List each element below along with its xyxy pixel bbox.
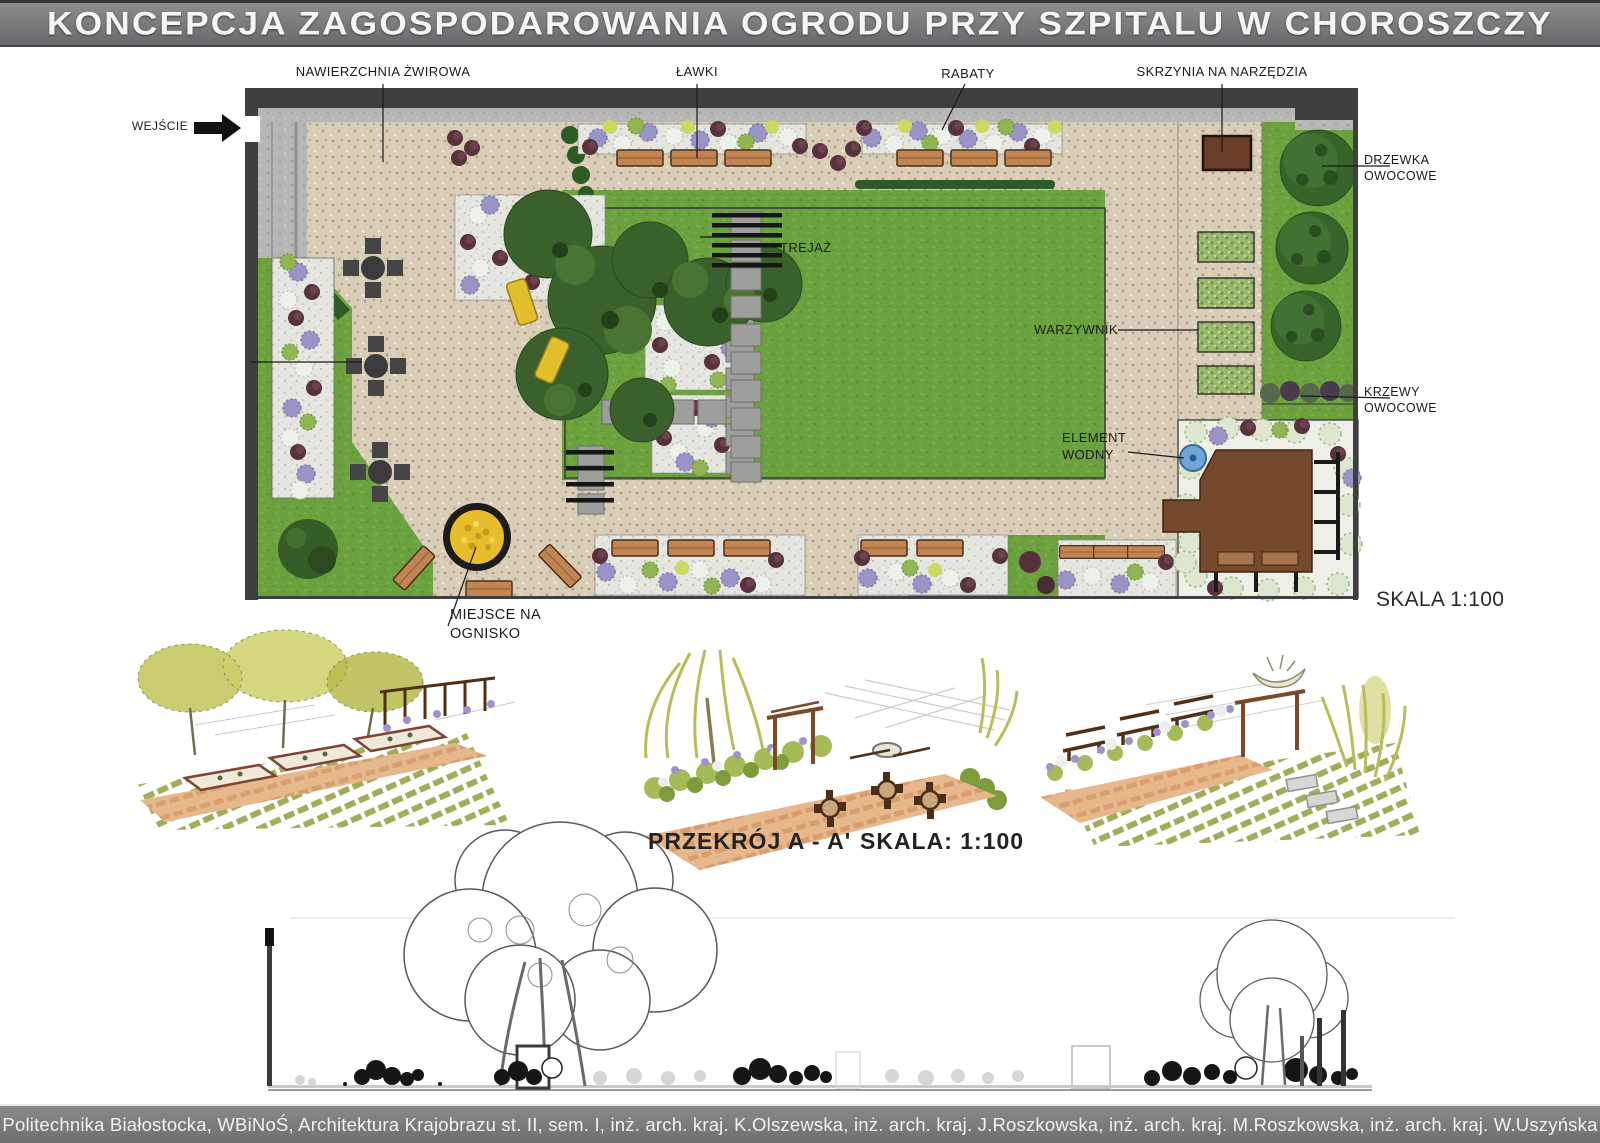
- master-plan: [194, 84, 1390, 626]
- label-fire-pit: MIEJSCE NA OGNISKO: [450, 606, 562, 644]
- tool-chest: [1203, 136, 1251, 170]
- label-vegetable-garden: WARZYWNIK: [1034, 322, 1124, 339]
- flower-bed-left: [272, 254, 334, 499]
- deck-garden: [1163, 417, 1362, 601]
- label-tool-chest: SKRZYNIA NA NARZĘDZIA: [1122, 64, 1322, 81]
- shrub-dot: [1037, 576, 1055, 594]
- concrete-edge: [258, 108, 1358, 122]
- plan-scale-label: SKALA 1:100: [1376, 586, 1504, 613]
- bench: [725, 150, 771, 166]
- board-title: KONCEPCJA ZAGOSPODAROWANIA OGRODU PRZY S…: [47, 5, 1553, 42]
- perspective-sketch-3: [1040, 655, 1420, 847]
- label-entrance: WEJŚCIE: [128, 119, 188, 135]
- entrance-arrow-icon: [194, 114, 241, 142]
- section-shrubs: [343, 1058, 1358, 1086]
- concrete-edge-right: [1295, 120, 1358, 130]
- label-trellis: TREJAŻ: [780, 240, 840, 257]
- flower-bed-bottom-c: [1057, 540, 1176, 598]
- label-flower-beds: RABATY: [930, 66, 1006, 83]
- bench: [671, 150, 717, 166]
- title-bar: KONCEPCJA ZAGOSPODAROWANIA OGRODU PRZY S…: [0, 0, 1600, 47]
- bench: [466, 581, 512, 597]
- lamp-post: [267, 928, 272, 1086]
- lone-shrub: [278, 519, 338, 579]
- bench: [897, 150, 943, 166]
- section-tree-small: [1200, 920, 1348, 1086]
- bench: [951, 150, 997, 166]
- label-fruit-shrubs: KRZEWY OWOCOWE: [1364, 384, 1444, 417]
- label-water-feature: ELEMENT WODNY: [1062, 430, 1140, 464]
- deck-bench: [1262, 552, 1298, 565]
- credits-bar: Politechnika Białostocka, WBiNoŚ, Archit…: [0, 1104, 1600, 1143]
- entrance-walk: [258, 108, 307, 258]
- section-drawing: [265, 822, 1455, 1090]
- label-benches: ŁAWKI: [662, 64, 732, 81]
- deck-bench: [1218, 552, 1254, 565]
- section-title: PRZEKRÓJ A - A': [648, 828, 851, 855]
- bench: [617, 150, 663, 166]
- site-plan-svg: [0, 0, 1600, 1143]
- perspective-sketch-1: [135, 630, 515, 830]
- fruit-tree: [1280, 130, 1356, 206]
- pergola: [1235, 691, 1305, 757]
- bench: [1005, 150, 1051, 166]
- credits-text: Politechnika Białostocka, WBiNoŚ, Archit…: [2, 1114, 1597, 1136]
- presentation-board: KONCEPCJA ZAGOSPODAROWANIA OGRODU PRZY S…: [0, 0, 1600, 1143]
- section-scale-label: SKALA: 1:100: [860, 828, 1024, 855]
- flower-bed-bottom-a: [592, 535, 805, 595]
- shrub-dot: [1019, 551, 1041, 573]
- fire-pit: [443, 503, 511, 571]
- section-tree-large: [404, 822, 717, 1086]
- label-gravel-surface: NAWIERZCHNIA ŻWIROWA: [288, 64, 478, 81]
- bench-row: [1063, 696, 1213, 761]
- label-fruit-trees: DRZEWKA OWOCOWE: [1364, 152, 1448, 185]
- fruit-tree: [1271, 291, 1341, 361]
- flower-bed-bottom-b: [854, 535, 1008, 595]
- willow-tree: [646, 650, 763, 758]
- fruit-tree: [1276, 212, 1348, 284]
